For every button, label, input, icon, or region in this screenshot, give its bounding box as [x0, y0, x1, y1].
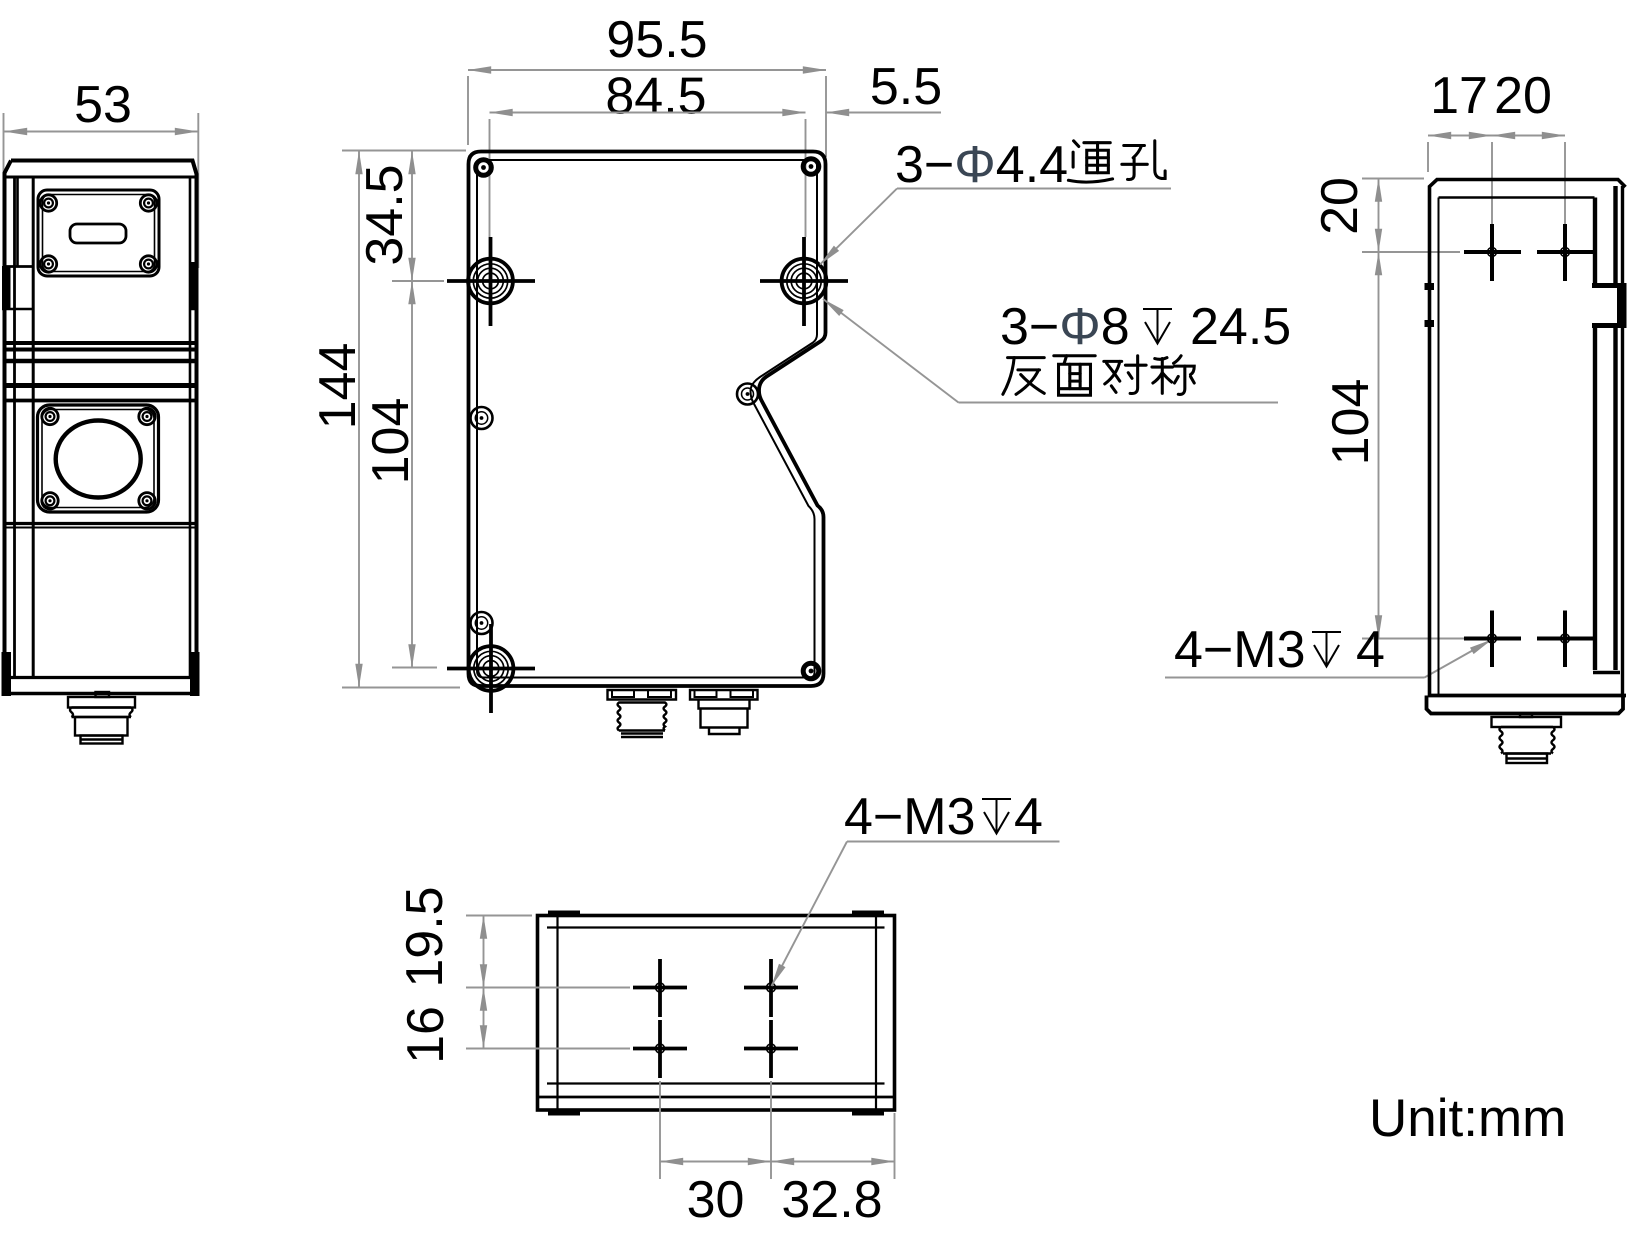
- svg-text:30: 30: [687, 1171, 745, 1229]
- svg-text:24.5: 24.5: [1190, 298, 1291, 356]
- svg-text:34.5: 34.5: [356, 164, 414, 265]
- svg-text:20: 20: [1494, 67, 1552, 125]
- svg-text:Unit:mm: Unit:mm: [1369, 1089, 1566, 1148]
- svg-text:84.5: 84.5: [605, 68, 706, 126]
- svg-text:53: 53: [74, 76, 132, 134]
- svg-text:4: 4: [1356, 621, 1385, 679]
- svg-text:4−M3: 4−M3: [1174, 621, 1306, 679]
- svg-text:4−M3: 4−M3: [844, 788, 976, 846]
- svg-text:3−Φ8: 3−Φ8: [1000, 298, 1130, 356]
- svg-text:104: 104: [1322, 379, 1380, 466]
- svg-text:95.5: 95.5: [606, 11, 707, 69]
- svg-text:32.8: 32.8: [781, 1171, 882, 1229]
- svg-text:19.5: 19.5: [396, 886, 454, 987]
- svg-text:3−Φ4.4: 3−Φ4.4: [895, 136, 1068, 194]
- svg-text:20: 20: [1311, 177, 1369, 235]
- svg-text:5.5: 5.5: [870, 58, 942, 116]
- svg-text:16: 16: [397, 1006, 455, 1064]
- svg-text:17: 17: [1430, 67, 1488, 125]
- svg-text:4: 4: [1014, 788, 1043, 846]
